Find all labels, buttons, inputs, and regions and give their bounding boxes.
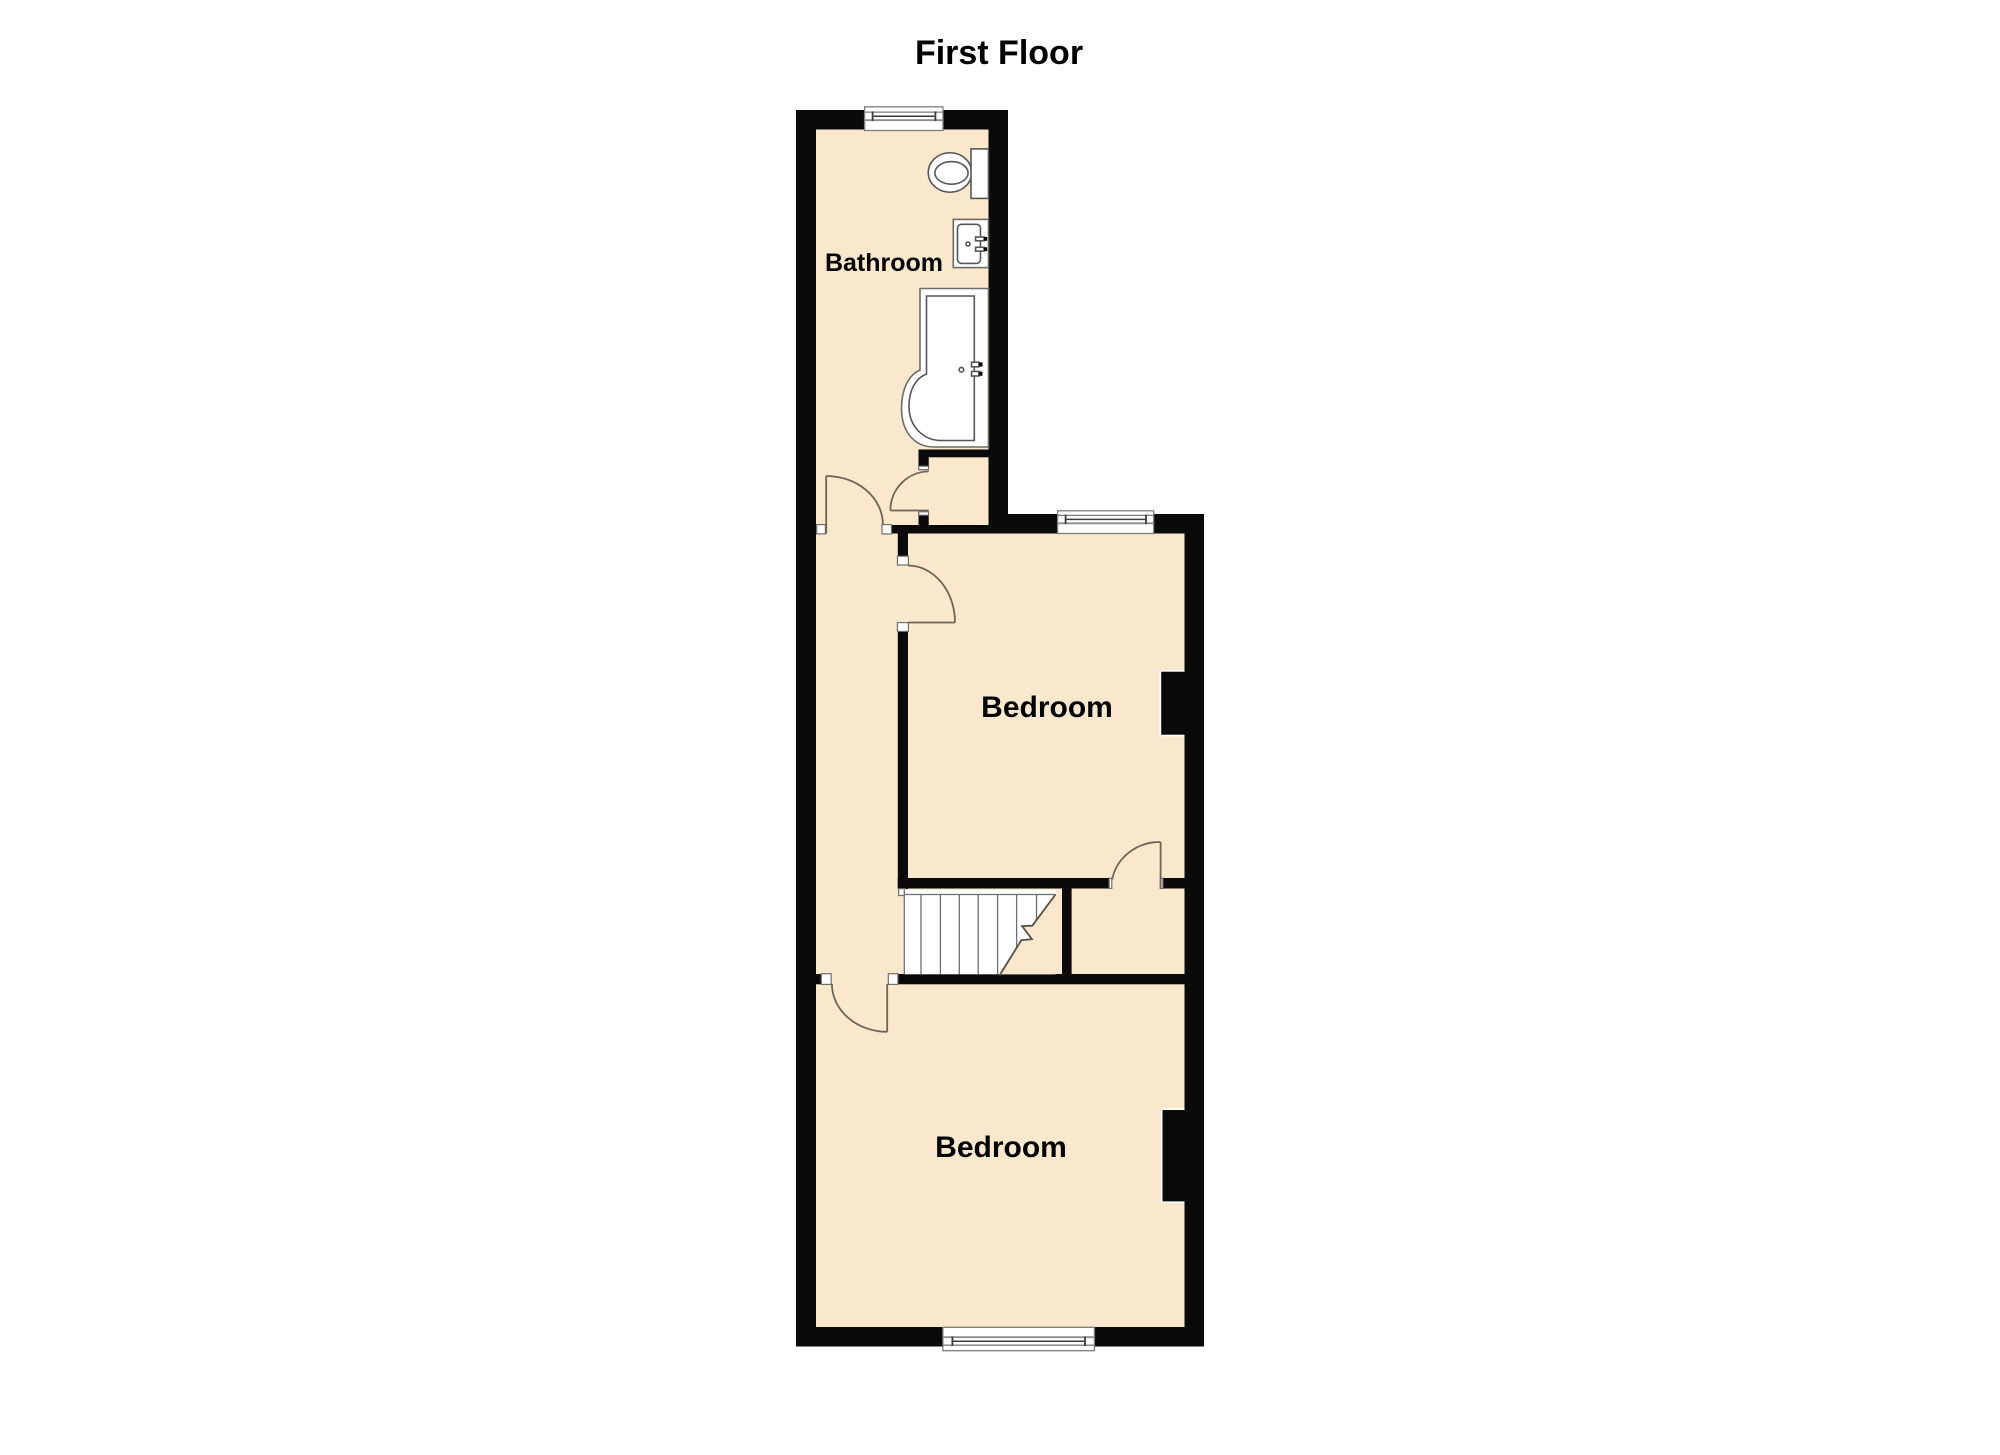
svg-text:Bedroom: Bedroom (935, 1131, 1067, 1164)
svg-text:First Floor: First Floor (915, 34, 1083, 72)
svg-text:Bathroom: Bathroom (825, 249, 943, 277)
svg-text:Bedroom: Bedroom (981, 691, 1113, 724)
